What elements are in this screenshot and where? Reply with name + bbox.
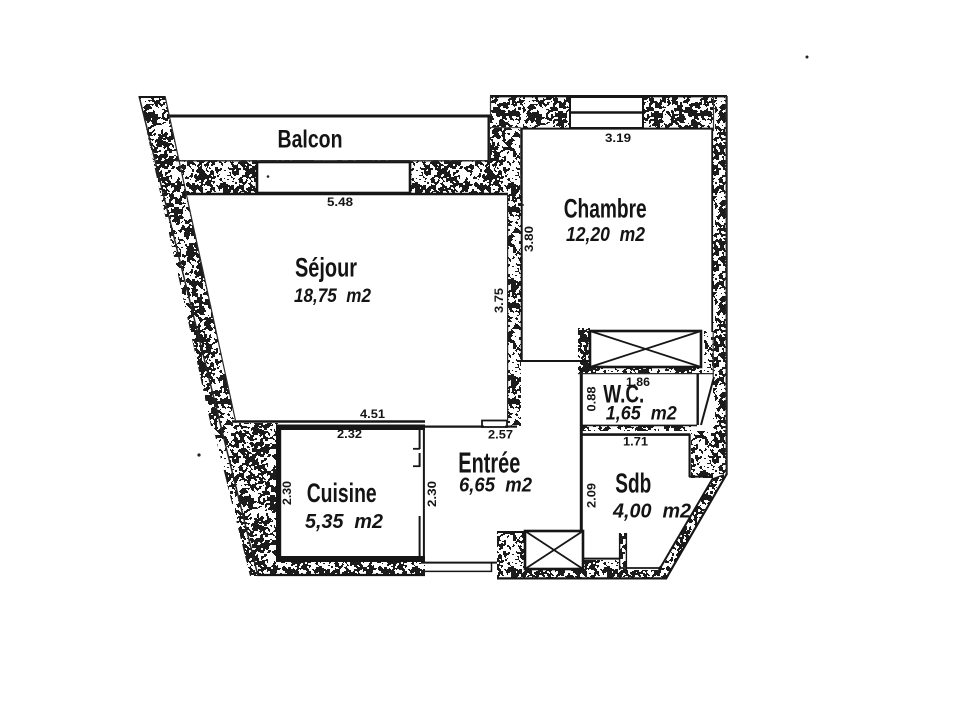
svg-text:2.30: 2.30 (427, 481, 439, 507)
svg-text:Balcon: Balcon (278, 126, 343, 154)
svg-text:Cuisine: Cuisine (307, 478, 377, 508)
svg-text:1.86: 1.86 (626, 377, 650, 389)
svg-text:18,75 m2: 18,75 m2 (294, 285, 371, 307)
svg-text:12,20 m2: 12,20 m2 (566, 224, 645, 246)
svg-text:Sdb: Sdb (615, 468, 651, 499)
svg-text:1.71: 1.71 (623, 437, 649, 449)
svg-text:3.19: 3.19 (605, 133, 631, 145)
svg-text:3.80: 3.80 (524, 226, 536, 252)
svg-text:1,65 m2: 1,65 m2 (606, 404, 677, 425)
svg-text:0.88: 0.88 (587, 386, 599, 412)
svg-text:6,65 m2: 6,65 m2 (459, 475, 532, 497)
svg-text:Chambre: Chambre (564, 194, 647, 224)
svg-text:5,35 m2: 5,35 m2 (305, 511, 383, 533)
svg-text:2.57: 2.57 (488, 430, 513, 442)
svg-text:5.48: 5.48 (327, 197, 354, 209)
svg-text:3.75: 3.75 (494, 287, 506, 313)
svg-text:2.09: 2.09 (587, 483, 599, 508)
svg-text:2.32: 2.32 (337, 429, 362, 441)
svg-text:4,00 m2: 4,00 m2 (612, 500, 692, 523)
svg-text:Séjour: Séjour (295, 253, 357, 283)
svg-text:2.30: 2.30 (282, 481, 294, 505)
svg-text:4.51: 4.51 (360, 409, 386, 421)
